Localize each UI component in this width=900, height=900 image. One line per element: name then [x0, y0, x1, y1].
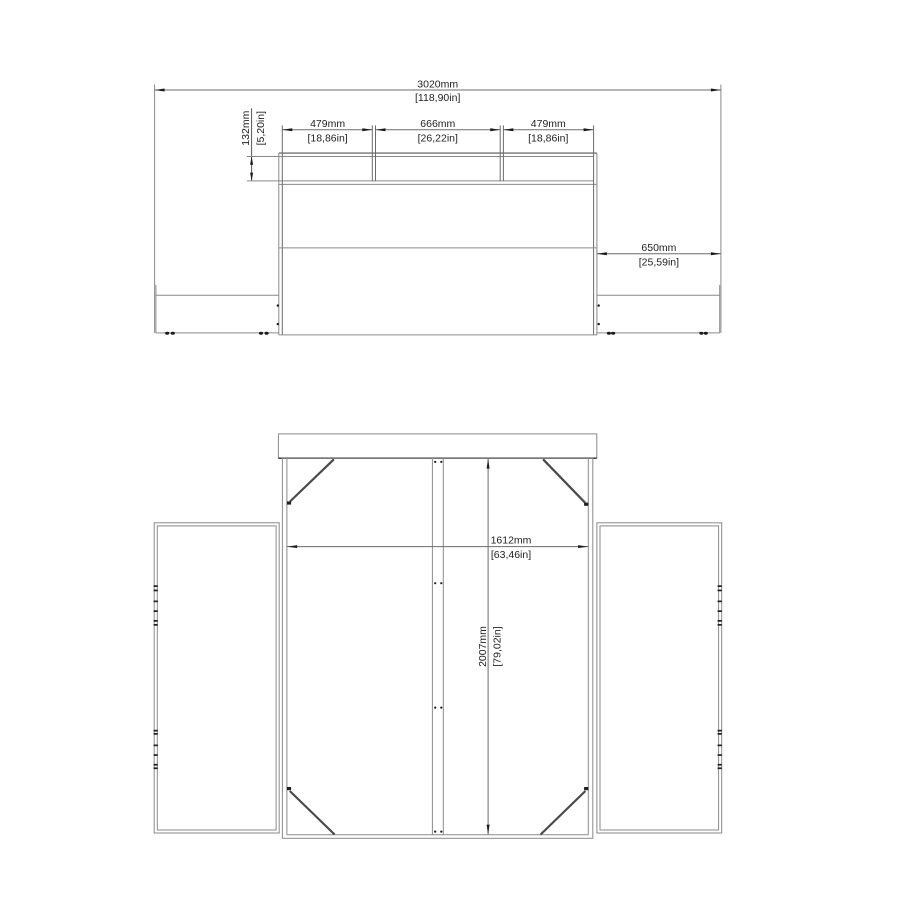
svg-text:132mm: 132mm — [240, 110, 252, 145]
svg-text:[118,90in]: [118,90in] — [415, 92, 460, 104]
svg-text:[18,86in]: [18,86in] — [528, 132, 568, 144]
svg-text:479mm: 479mm — [531, 118, 566, 130]
svg-text:666mm: 666mm — [420, 118, 455, 130]
svg-text:[18,86in]: [18,86in] — [307, 132, 347, 144]
svg-text:2007mm: 2007mm — [477, 626, 489, 667]
svg-text:[79,02in]: [79,02in] — [492, 626, 504, 666]
svg-text:650mm: 650mm — [641, 242, 676, 254]
svg-text:479mm: 479mm — [310, 118, 345, 130]
svg-text:[5,20in]: [5,20in] — [255, 111, 267, 146]
svg-text:3020mm: 3020mm — [417, 78, 458, 90]
svg-text:[25,59in]: [25,59in] — [639, 256, 679, 268]
svg-text:1612mm: 1612mm — [491, 535, 532, 547]
svg-text:[63,46in]: [63,46in] — [491, 549, 531, 561]
svg-text:[26,22in]: [26,22in] — [418, 132, 458, 144]
